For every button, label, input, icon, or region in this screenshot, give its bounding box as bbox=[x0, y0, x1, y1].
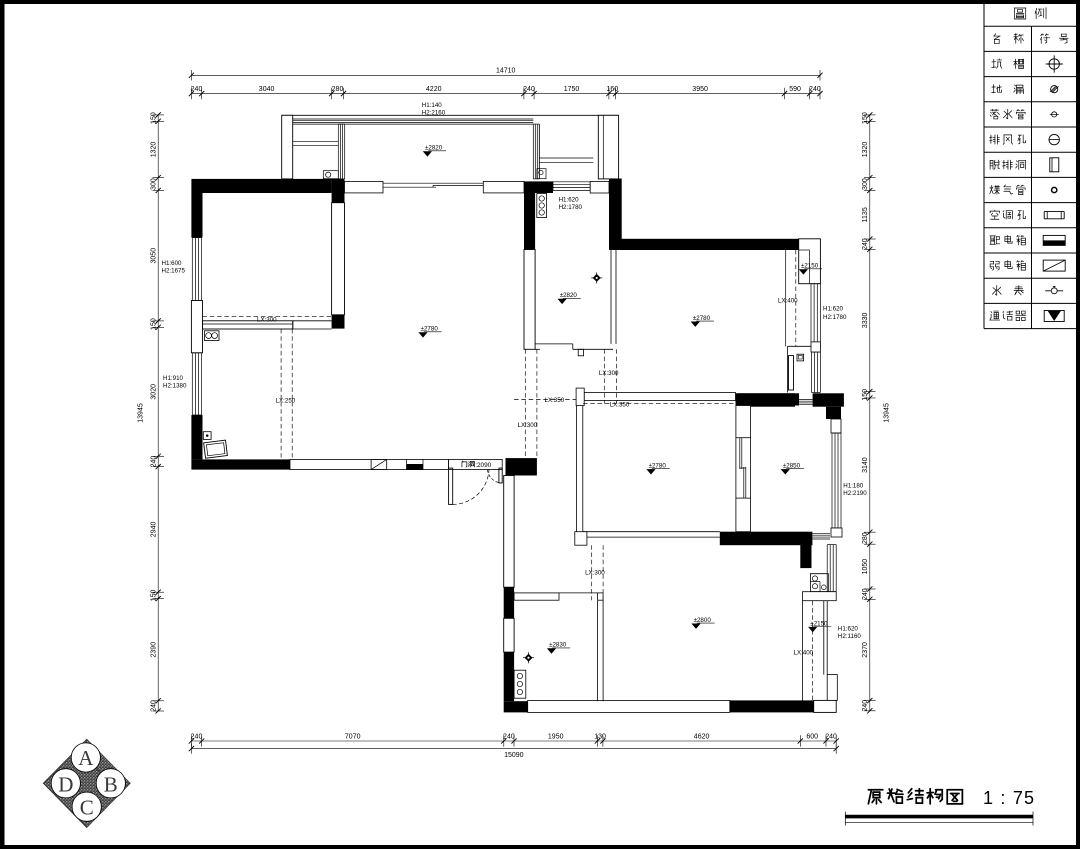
svg-text:LX:400: LX:400 bbox=[778, 298, 798, 305]
svg-text:3050: 3050 bbox=[150, 248, 157, 264]
svg-text:H2:1780: H2:1780 bbox=[559, 204, 583, 211]
svg-text:1750: 1750 bbox=[564, 86, 580, 93]
svg-text:300: 300 bbox=[862, 178, 869, 190]
svg-text:LX:250: LX:250 bbox=[276, 398, 296, 405]
svg-text:3140: 3140 bbox=[862, 457, 869, 473]
svg-text:C: C bbox=[80, 796, 94, 820]
svg-text:240: 240 bbox=[809, 86, 821, 93]
svg-text:2940: 2940 bbox=[150, 522, 157, 538]
svg-text:14710: 14710 bbox=[496, 67, 516, 74]
svg-text:13945: 13945 bbox=[884, 403, 891, 423]
svg-text:15090: 15090 bbox=[504, 752, 524, 759]
svg-text:H1:600: H1:600 bbox=[162, 260, 183, 267]
svg-text:LX:400: LX:400 bbox=[794, 649, 814, 656]
svg-text:3020: 3020 bbox=[150, 384, 157, 400]
svg-text:D: D bbox=[58, 772, 73, 796]
svg-text:LX:350: LX:350 bbox=[545, 397, 565, 404]
svg-text:H1:620: H1:620 bbox=[559, 197, 580, 204]
svg-text:1 : 75: 1 : 75 bbox=[983, 788, 1035, 808]
svg-text:4620: 4620 bbox=[694, 733, 710, 740]
svg-text:13945: 13945 bbox=[138, 403, 145, 423]
svg-text:150: 150 bbox=[862, 389, 869, 401]
svg-text:1050: 1050 bbox=[862, 559, 869, 575]
svg-text:2370: 2370 bbox=[862, 642, 869, 658]
svg-text:150: 150 bbox=[862, 112, 869, 124]
svg-text:240: 240 bbox=[825, 733, 837, 740]
svg-text:LX:300: LX:300 bbox=[257, 316, 277, 323]
svg-text:240: 240 bbox=[191, 733, 203, 740]
svg-text:LX:300: LX:300 bbox=[585, 570, 605, 577]
svg-text:600: 600 bbox=[806, 733, 818, 740]
svg-text:240: 240 bbox=[862, 700, 869, 712]
svg-text:H1:140: H1:140 bbox=[422, 102, 443, 109]
svg-text:3950: 3950 bbox=[692, 86, 708, 93]
svg-text:H2:1675: H2:1675 bbox=[162, 268, 186, 275]
svg-text:1320: 1320 bbox=[150, 142, 157, 158]
svg-text:240: 240 bbox=[523, 86, 535, 93]
svg-text:H1:620: H1:620 bbox=[823, 306, 844, 313]
svg-text:240: 240 bbox=[862, 588, 869, 600]
svg-text:1320: 1320 bbox=[862, 142, 869, 158]
svg-text:150: 150 bbox=[150, 589, 157, 601]
svg-text:H2:2160: H2:2160 bbox=[422, 110, 446, 117]
svg-text:H1:620: H1:620 bbox=[838, 626, 859, 633]
svg-text:H1:180: H1:180 bbox=[843, 483, 864, 490]
svg-text:240: 240 bbox=[503, 733, 515, 740]
svg-text:2390: 2390 bbox=[150, 642, 157, 658]
svg-text:LX:300: LX:300 bbox=[518, 422, 538, 429]
svg-text:280: 280 bbox=[332, 86, 344, 93]
svg-text:1950: 1950 bbox=[548, 733, 564, 740]
svg-text:H1:910: H1:910 bbox=[163, 375, 184, 382]
svg-text:150: 150 bbox=[150, 318, 157, 330]
svg-text:240: 240 bbox=[191, 86, 203, 93]
svg-text:240: 240 bbox=[862, 238, 869, 250]
svg-text:160: 160 bbox=[606, 86, 618, 93]
svg-text:3330: 3330 bbox=[862, 313, 869, 329]
svg-text:LX:350: LX:350 bbox=[610, 401, 630, 408]
svg-text:1135: 1135 bbox=[862, 207, 869, 222]
svg-text:7070: 7070 bbox=[345, 733, 361, 740]
svg-text:B: B bbox=[104, 772, 118, 796]
svg-text:H2:2190: H2:2190 bbox=[843, 490, 867, 497]
svg-text::2090: :2090 bbox=[475, 462, 491, 469]
svg-text:280: 280 bbox=[862, 532, 869, 544]
svg-text:240: 240 bbox=[150, 456, 157, 468]
svg-text:4220: 4220 bbox=[426, 86, 442, 93]
svg-text:590: 590 bbox=[789, 86, 801, 93]
svg-text:H2:1160: H2:1160 bbox=[838, 633, 861, 640]
svg-text:150: 150 bbox=[150, 112, 157, 124]
svg-text:LX:300: LX:300 bbox=[599, 370, 619, 377]
svg-text:240: 240 bbox=[150, 700, 157, 712]
svg-text:H2:1380: H2:1380 bbox=[163, 383, 187, 390]
svg-text:H2:1780: H2:1780 bbox=[823, 314, 847, 321]
svg-text:130: 130 bbox=[594, 733, 606, 740]
svg-text:300: 300 bbox=[150, 178, 157, 190]
svg-text:A: A bbox=[78, 746, 94, 770]
svg-text:3040: 3040 bbox=[259, 86, 275, 93]
